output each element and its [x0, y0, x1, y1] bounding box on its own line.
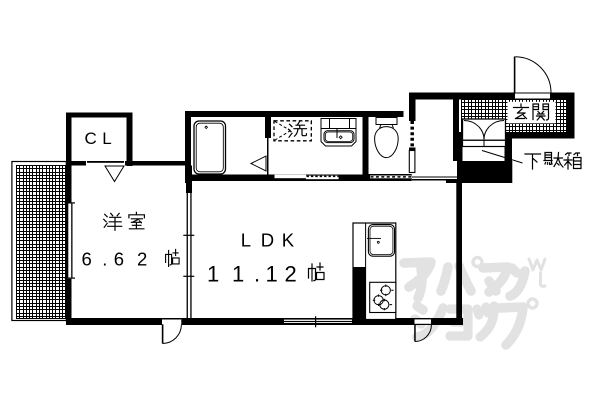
svg-text:.: . [254, 262, 260, 287]
svg-text:1: 1 [207, 262, 219, 287]
svg-text:CL: CL [85, 129, 118, 148]
svg-text:K: K [282, 230, 295, 251]
svg-text:L: L [241, 230, 251, 251]
svg-text:2: 2 [285, 262, 297, 287]
svg-text:.: . [102, 249, 107, 270]
svg-text:6: 6 [114, 249, 124, 270]
svg-text:1: 1 [266, 262, 278, 287]
svg-text:2: 2 [137, 249, 147, 270]
svg-text:D: D [261, 230, 274, 251]
svg-text:6: 6 [82, 249, 92, 270]
svg-text:1: 1 [232, 262, 244, 287]
